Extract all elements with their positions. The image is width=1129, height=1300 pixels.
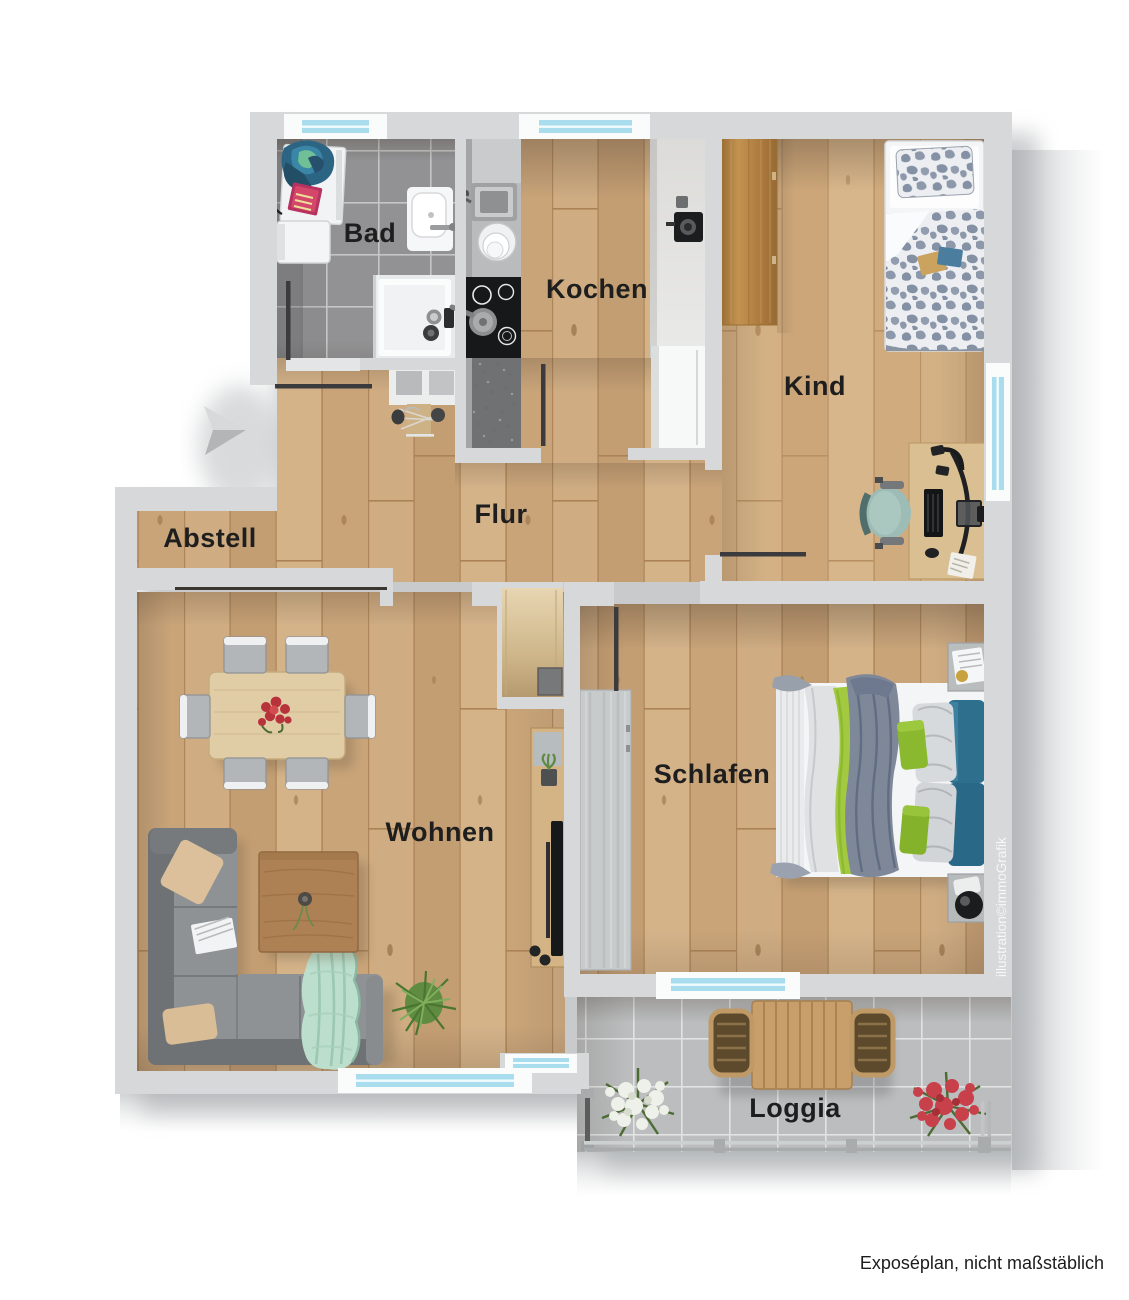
svg-text:Flur: Flur	[475, 499, 528, 529]
svg-text:Wohnen: Wohnen	[386, 817, 495, 847]
svg-text:Bad: Bad	[344, 218, 397, 248]
svg-text:illustration©immoGrafik: illustration©immoGrafik	[994, 837, 1009, 977]
svg-text:Exposéplan, nicht maßstäblich: Exposéplan, nicht maßstäblich	[860, 1253, 1104, 1273]
svg-text:Kind: Kind	[784, 371, 846, 401]
svg-text:Abstell: Abstell	[163, 523, 257, 553]
svg-text:Schlafen: Schlafen	[654, 759, 771, 789]
svg-text:Kochen: Kochen	[546, 274, 648, 304]
svg-text:Loggia: Loggia	[749, 1093, 841, 1123]
